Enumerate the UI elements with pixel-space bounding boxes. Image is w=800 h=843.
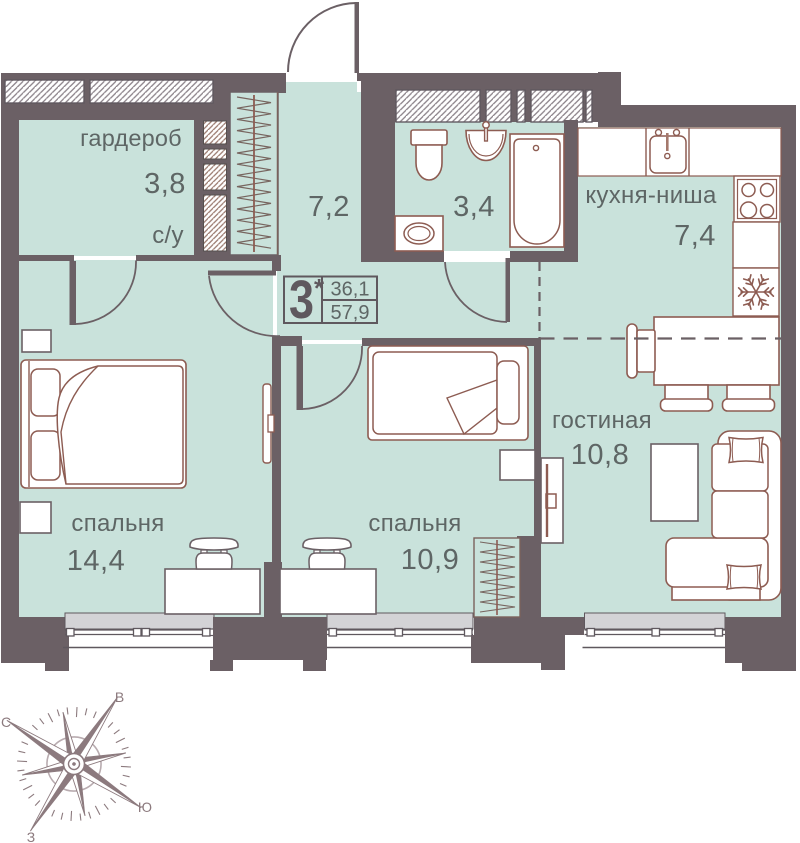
- svg-text:3: 3: [289, 270, 314, 330]
- svg-text:В: В: [115, 689, 124, 705]
- svg-text:3,4: 3,4: [453, 191, 495, 223]
- svg-text:с/у: с/у: [152, 222, 184, 249]
- svg-text:10,9: 10,9: [401, 544, 459, 576]
- svg-text:З: З: [27, 829, 35, 843]
- svg-text:*: *: [314, 273, 325, 303]
- svg-text:10,8: 10,8: [571, 439, 629, 471]
- svg-text:спальня: спальня: [71, 510, 164, 537]
- svg-text:7,4: 7,4: [674, 220, 716, 252]
- svg-text:7,2: 7,2: [308, 191, 350, 223]
- svg-text:3,8: 3,8: [144, 168, 186, 200]
- svg-text:гардероб: гардероб: [80, 125, 182, 151]
- svg-text:36,1: 36,1: [331, 279, 370, 301]
- svg-text:гостиная: гостиная: [552, 407, 652, 434]
- svg-text:С: С: [1, 714, 11, 730]
- svg-text:спальня: спальня: [368, 510, 461, 537]
- svg-text:Ю: Ю: [138, 799, 152, 815]
- svg-text:кухня-ниша: кухня-ниша: [585, 182, 717, 209]
- svg-text:57,9: 57,9: [331, 302, 370, 324]
- svg-text:14,4: 14,4: [67, 545, 125, 577]
